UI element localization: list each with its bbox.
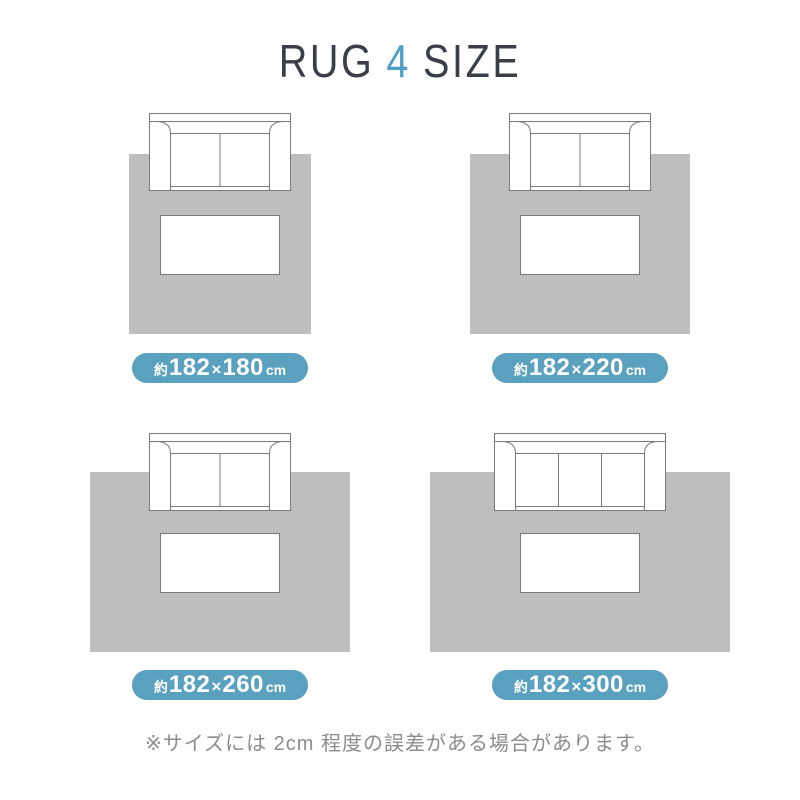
badge-approx-label: 約 [514, 362, 528, 378]
sofa-2seat-top-view-icon [149, 433, 291, 511]
title-number-4: 4 [386, 35, 411, 87]
low-table-rect [160, 533, 280, 593]
rug-size-infographic: RUG4SIZE 約182×180cm 約182×220cm [0, 0, 800, 800]
badge-approx-label: 約 [154, 679, 168, 695]
rug-size-panel-182x260: 約182×260cm [40, 433, 400, 705]
sofa-2seat-top-view-icon [509, 113, 651, 191]
rug-size-panel-182x300: 約182×300cm [400, 433, 760, 705]
title-word-size: SIZE [423, 35, 521, 87]
badge-times-sign: × [571, 360, 581, 379]
badge-width-value: 182 [169, 354, 211, 381]
size-badge-182x220: 約182×220cm [492, 353, 668, 383]
low-table-rect [160, 215, 280, 275]
badge-approx-label: 約 [514, 679, 528, 695]
badge-width-value: 182 [169, 671, 211, 698]
badge-approx-label: 約 [154, 362, 168, 378]
badge-length-value: 260 [222, 671, 264, 698]
size-tolerance-footnote: ※サイズには 2cm 程度の誤差がある場合があります。 [0, 728, 800, 760]
rug-size-panel-182x220: 約182×220cm [400, 113, 760, 385]
size-badge-182x180: 約182×180cm [132, 353, 308, 383]
badge-length-value: 220 [582, 354, 624, 381]
sofa-2seat-top-view-icon [149, 113, 291, 191]
badge-times-sign: × [211, 360, 221, 379]
badge-width-value: 182 [529, 354, 571, 381]
badge-unit-label: cm [626, 679, 646, 695]
page-title: RUG4SIZE [56, 36, 744, 87]
badge-unit-label: cm [626, 362, 646, 378]
badge-times-sign: × [571, 677, 581, 696]
badge-times-sign: × [211, 677, 221, 696]
badge-unit-label: cm [266, 362, 286, 378]
sofa-3seat-top-view-icon [494, 433, 666, 511]
low-table-rect [520, 215, 640, 275]
title-word-rug: RUG [279, 35, 375, 87]
badge-unit-label: cm [266, 679, 286, 695]
size-badge-182x260: 約182×260cm [132, 670, 308, 700]
badge-length-value: 300 [582, 671, 624, 698]
low-table-rect [520, 533, 640, 593]
badge-length-value: 180 [222, 354, 264, 381]
badge-width-value: 182 [529, 671, 571, 698]
rug-size-panel-182x180: 約182×180cm [40, 113, 400, 385]
size-badge-182x300: 約182×300cm [492, 670, 668, 700]
